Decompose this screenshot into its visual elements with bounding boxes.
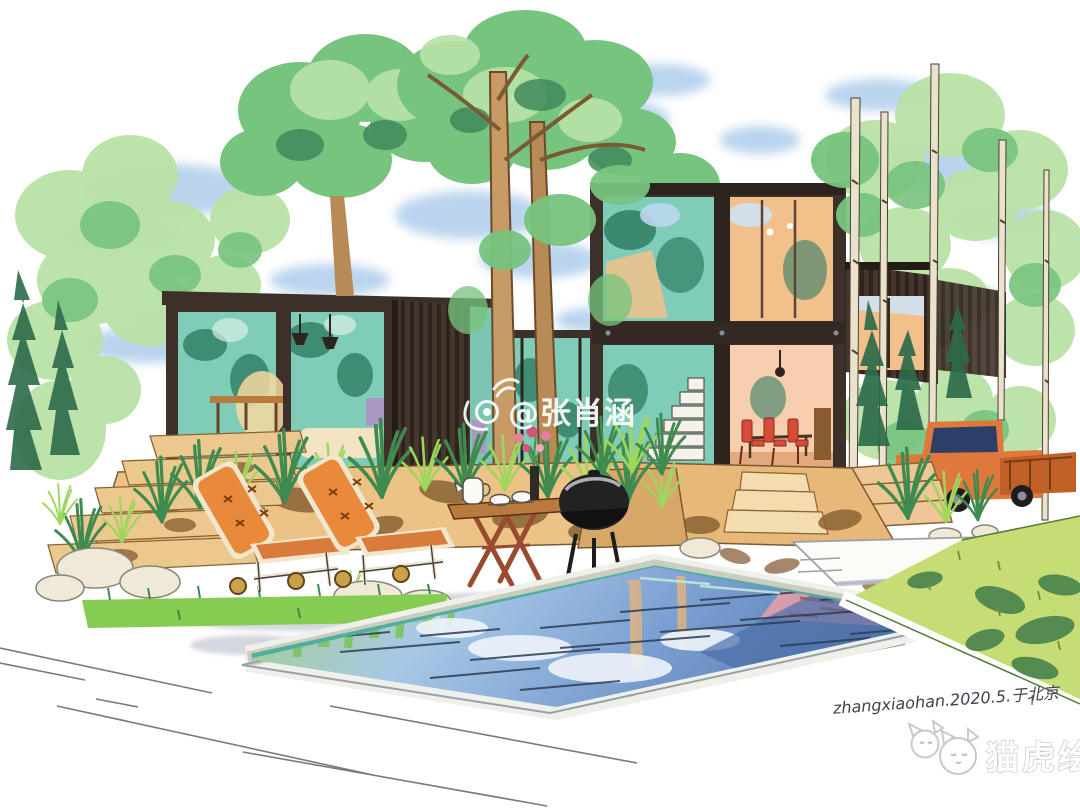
annex-container-far <box>938 280 1006 378</box>
two-cat-faces-icon <box>909 721 978 774</box>
dining-table <box>744 436 812 438</box>
flower-vase <box>530 466 539 500</box>
pendant-lamp <box>775 367 785 377</box>
interior-warm-glow <box>236 371 288 439</box>
studio-logo-text: 猫虎绘 <box>986 738 1080 777</box>
truck-cab-window <box>930 426 998 453</box>
interior-cabinet <box>814 408 831 460</box>
floor-beam <box>592 322 844 344</box>
rendering-scene: @张肖涵 zhangxiaohan.2020.5.于北京 猫虎绘 <box>0 0 1080 809</box>
swimming-pool <box>228 567 950 713</box>
artist-signature: zhangxiaohan.2020.5.于北京 <box>831 683 1061 718</box>
studio-logo: 猫虎绘 <box>909 721 1080 777</box>
watermark-handle: @张肖涵 <box>508 396 636 432</box>
interior-plant <box>750 376 786 420</box>
artwork-canvas: @张肖涵 zhangxiaohan.2020.5.于北京 猫虎绘 <box>0 0 1080 809</box>
grill-lid-handle <box>588 470 600 476</box>
